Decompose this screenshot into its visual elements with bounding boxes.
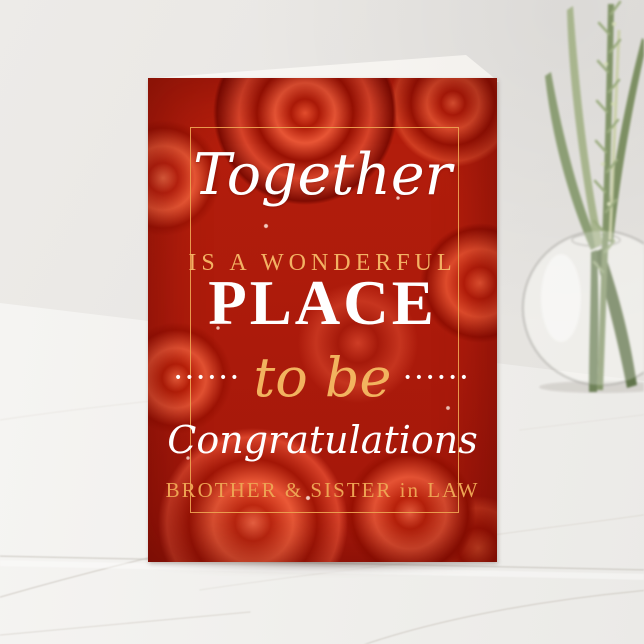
card-line-place: PLACE — [148, 272, 497, 335]
card-script-congratulations: Congratulations — [148, 418, 497, 464]
product-photo-scene: Together IS A WONDERFUL PLACE •••••• to … — [0, 0, 644, 644]
card-script-to-be: to be — [254, 340, 392, 416]
card-line-to-be-row: •••••• to be •••••• — [148, 340, 497, 416]
card-line-recipient: BROTHER & SISTER in LAW — [148, 478, 497, 503]
vase-and-plant — [495, 0, 644, 400]
dotted-divider-left: •••••• — [174, 370, 242, 386]
dotted-divider-right: •••••• — [403, 370, 471, 386]
greeting-card-front: Together IS A WONDERFUL PLACE •••••• to … — [148, 78, 497, 562]
card-script-together: Together — [148, 144, 497, 207]
glass-front-reflection — [523, 231, 644, 385]
